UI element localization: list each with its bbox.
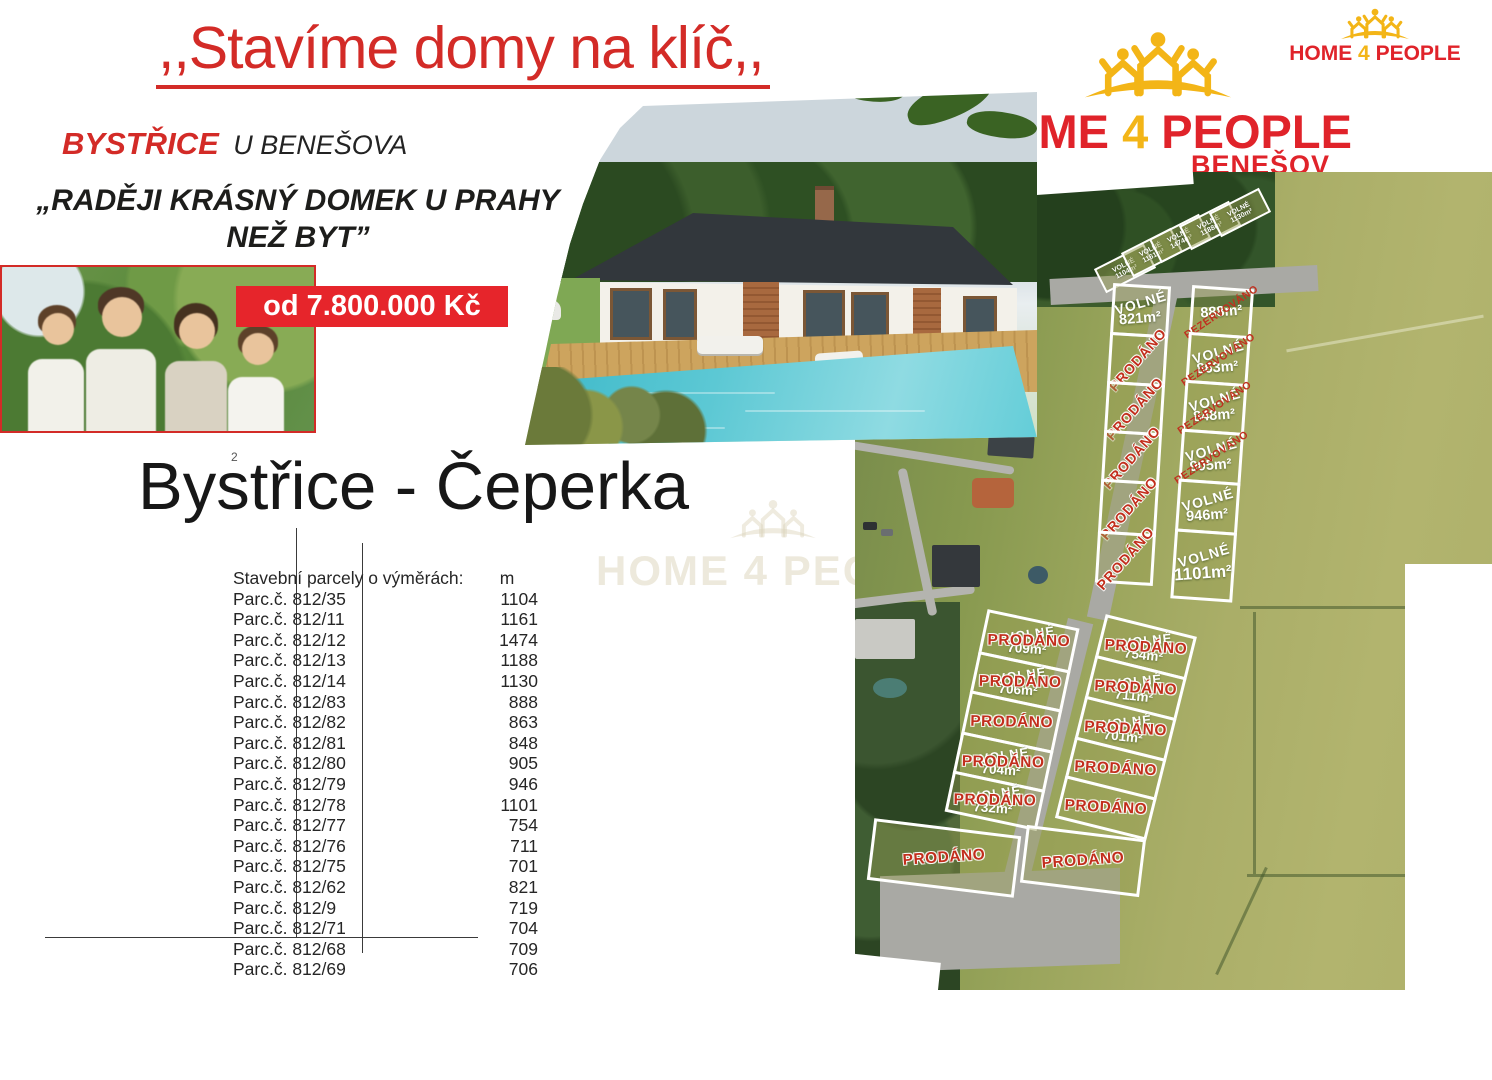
table-row: Parc.č. 812/77754 <box>233 815 538 836</box>
house-visualisation-photo <box>515 92 1037 445</box>
parcel-number: Parc.č. 812/62 <box>233 877 346 898</box>
photo-sofa <box>697 336 763 354</box>
table-row: Parc.č. 812/69706 <box>233 959 538 980</box>
parcel-area: 821 <box>476 877 538 898</box>
parcel-number: Parc.č. 812/69 <box>233 959 346 980</box>
page-title: ,,Stavíme domy na klíč,, <box>156 14 770 89</box>
parcel-area: 1188 <box>476 650 538 671</box>
table-row: Parc.č. 812/131188 <box>233 650 538 671</box>
parcel-number: Parc.č. 812/71 <box>233 918 346 939</box>
photo-plants <box>515 367 735 445</box>
photo-figure <box>28 359 84 433</box>
map-edge <box>1405 564 1492 990</box>
table-row: Parc.č. 812/75701 <box>233 856 538 877</box>
map-parcel: PRODÁNO <box>867 818 1021 898</box>
photo-figure <box>228 377 284 433</box>
parcel-number: Parc.č. 812/83 <box>233 692 346 713</box>
parcel-number: Parc.č. 812/75 <box>233 856 346 877</box>
parcel-number: Parc.č. 812/12 <box>233 630 346 651</box>
photo-figure <box>86 349 156 433</box>
parcel-area: 704 <box>476 918 538 939</box>
parcel-overlay-label: PRODÁNO <box>1061 787 1151 830</box>
parcel-area: 754 <box>476 815 538 836</box>
location-primary: BYSTŘICE <box>62 126 219 161</box>
parcel-area: 848 <box>476 733 538 754</box>
photo-figure <box>242 333 274 365</box>
photo-leaves <box>965 105 1037 145</box>
table-row: Parc.č. 812/141130 <box>233 671 538 692</box>
parcel-overlay-label: PRODÁNO <box>951 782 1040 820</box>
parcel-number: Parc.č. 812/80 <box>233 753 346 774</box>
table-header-label: Stavební parcely o výměrách: <box>233 568 464 589</box>
map-field-track <box>1215 867 1268 975</box>
table-row: Parc.č. 812/9719 <box>233 898 538 919</box>
map-field-track <box>1247 874 1407 877</box>
map-pool <box>1028 566 1048 584</box>
brand-4: 4 <box>1122 105 1148 158</box>
table-header-unit: m <box>476 568 538 589</box>
photo-window <box>663 289 697 340</box>
parcel-area: 1161 <box>476 609 538 630</box>
table-row: Parc.č. 812/121474 <box>233 630 538 651</box>
map-building <box>932 545 980 587</box>
parcel-area: 1104 <box>476 589 538 610</box>
photo-figure <box>165 361 227 433</box>
map-pond <box>873 678 907 698</box>
table-row: Parc.č. 812/82863 <box>233 712 538 733</box>
parcel-number: Parc.č. 812/9 <box>233 898 336 919</box>
parcel-number: Parc.č. 812/35 <box>233 589 346 610</box>
map-building-red-roof <box>972 478 1014 508</box>
parcel-number: Parc.č. 812/82 <box>233 712 346 733</box>
parcel-number: Parc.č. 812/79 <box>233 774 346 795</box>
crown-houses-icon <box>717 494 829 542</box>
parcel-number: Parc.č. 812/78 <box>233 795 346 816</box>
table-row: Parc.č. 812/781101 <box>233 795 538 816</box>
parcel-number: Parc.č. 812/68 <box>233 939 346 960</box>
map-column-upper-right: 888m²REZERVOVÁNO VOLNÉ863m²REZERVOVÁNO V… <box>1170 288 1254 603</box>
parcel-number: Parc.č. 812/81 <box>233 733 346 754</box>
parcel-area: 1474 <box>476 630 538 651</box>
table-row: Parc.č. 812/111161 <box>233 609 538 630</box>
map-field-boundary <box>1240 606 1410 609</box>
slogan-line-2: NEŽ BYT” <box>8 219 588 256</box>
brand-4: 4 <box>1358 42 1370 65</box>
parcel-table: Stavební parcely o výměrách: m Parc.č. 8… <box>233 568 538 980</box>
parcel-number: Parc.č. 812/77 <box>233 815 346 836</box>
location-line: BYSTŘICE U BENEŠOVA <box>62 126 407 162</box>
map-field-track <box>1286 315 1483 353</box>
parcel-overlay-label: PRODÁNO <box>1091 524 1160 593</box>
parcel-area: 888 <box>476 692 538 713</box>
photo-figure <box>42 313 74 345</box>
table-row: Parc.č. 812/79946 <box>233 774 538 795</box>
table-row: Parc.č. 812/71704 <box>233 918 538 939</box>
brand-people: PEOPLE <box>1376 42 1461 65</box>
parcel-number: Parc.č. 812/76 <box>233 836 346 857</box>
parcel-overlay-label: PRODÁNO <box>1024 831 1141 891</box>
table-row: Parc.č. 812/81848 <box>233 733 538 754</box>
map-car <box>881 529 893 536</box>
photo-brick-wall <box>743 282 779 344</box>
table-row: Parc.č. 812/68709 <box>233 939 538 960</box>
map-parcel: PRODÁNO <box>1020 825 1146 897</box>
photo-window <box>610 288 652 340</box>
parcel-area: 701 <box>476 856 538 877</box>
parcel-area: 706 <box>476 959 538 980</box>
map-field-track <box>1253 612 1256 874</box>
map-parcel: VOLNÉ1101m² <box>1170 528 1237 602</box>
table-row: Parc.č. 812/83888 <box>233 692 538 713</box>
parcel-number: Parc.č. 812/11 <box>233 609 345 630</box>
map-parcel: PRODÁNO <box>1095 531 1156 586</box>
parcel-area: 719 <box>476 898 538 919</box>
parcel-area: 1101 <box>476 795 538 816</box>
table-row: Parc.č. 812/80905 <box>233 753 538 774</box>
table-row: Parc.č. 812/76711 <box>233 836 538 857</box>
parcel-area: 946 <box>476 774 538 795</box>
location-secondary: U BENEŠOVA <box>233 130 407 160</box>
flyer-page: ,,Stavíme domy na klíč,, HOME 4 PEOPLE <box>0 0 1492 1080</box>
slogan-quote: „RADĚJI KRÁSNÝ DOMEK U PRAHY NEŽ BYT” <box>8 182 588 256</box>
crown-houses-icon <box>1064 22 1252 104</box>
photo-leaves <box>844 92 906 106</box>
table-row: Parc.č. 812/351104 <box>233 589 538 610</box>
photo-car <box>515 300 561 320</box>
map-car <box>863 522 877 530</box>
parcel-area: 863 <box>476 712 538 733</box>
parcel-overlay-label: PRODÁNO <box>871 825 1017 891</box>
parcel-area: 711 <box>476 836 538 857</box>
table-row: Parc.č. 812/62821 <box>233 877 538 898</box>
slogan-line-1: „RADĚJI KRÁSNÝ DOMEK U PRAHY <box>8 182 588 219</box>
photo-figure <box>102 297 142 337</box>
parcel-area: 1130 <box>476 671 538 692</box>
parcel-number: Parc.č. 812/14 <box>233 671 346 692</box>
price-badge: od 7.800.000 Kč <box>236 286 508 327</box>
table-header: Stavební parcely o výměrách: m <box>233 568 538 589</box>
map-column-upper-left: VOLNÉ821m² PRODÁNO PRODÁNO PRODÁNO PRODÁ… <box>1095 286 1171 586</box>
parcel-area: 709 <box>476 939 538 960</box>
parcel-area: 905 <box>476 753 538 774</box>
parcel-number: Parc.č. 812/13 <box>233 650 346 671</box>
photo-figure <box>179 313 215 349</box>
map-building <box>855 619 915 659</box>
parcel-overlay-label <box>1163 523 1245 607</box>
